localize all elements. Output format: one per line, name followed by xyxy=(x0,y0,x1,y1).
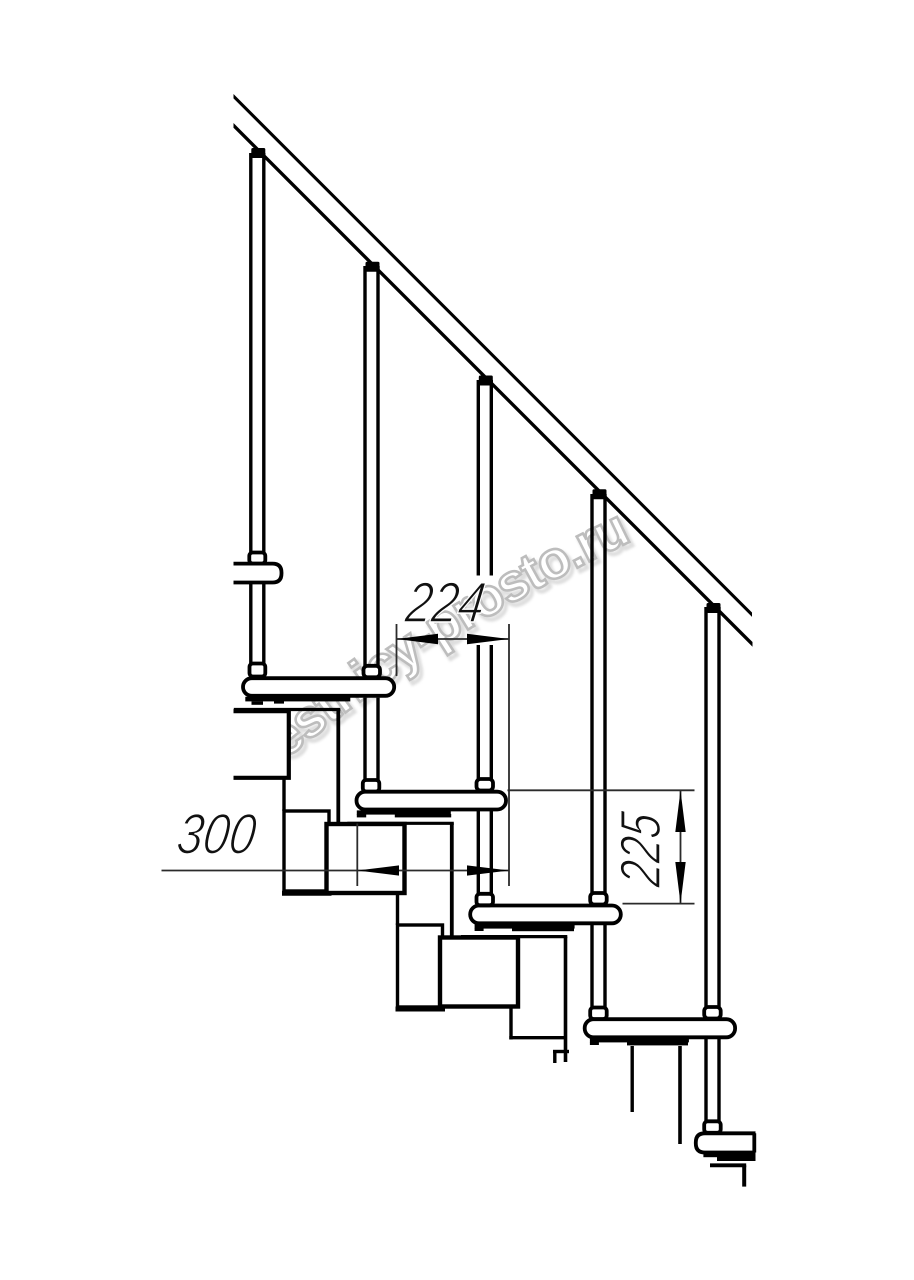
svg-text:224: 224 xyxy=(401,572,489,635)
svg-text:300: 300 xyxy=(173,803,260,866)
svg-text:225: 225 xyxy=(609,808,673,891)
